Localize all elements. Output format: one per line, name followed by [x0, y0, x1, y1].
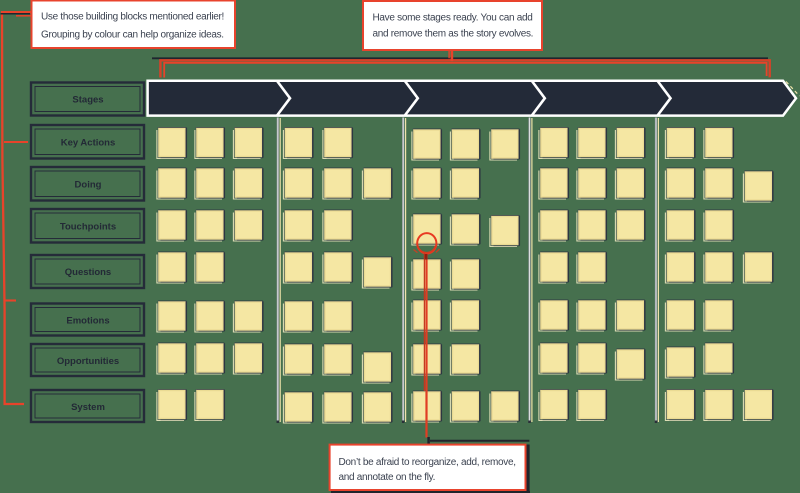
svg-text:and annotate on the fly.: and annotate on the fly. — [339, 472, 436, 483]
svg-text:Emotions: Emotions — [66, 316, 109, 327]
svg-text:Doing: Doing — [75, 180, 102, 191]
svg-text:Grouping by colour can help or: Grouping by colour can help organize ide… — [41, 29, 224, 40]
svg-text:and remove them as the story e: and remove them as the story evolves. — [373, 29, 534, 40]
svg-text:Have some stages ready. You ca: Have some stages ready. You can add — [373, 13, 533, 24]
svg-text:Questions: Questions — [65, 267, 111, 278]
svg-text:Don’t be afraid to reorganize,: Don’t be afraid to reorganize, add, remo… — [339, 457, 516, 468]
svg-text:Stages: Stages — [72, 95, 103, 106]
svg-text:Opportunities: Opportunities — [57, 356, 119, 367]
svg-text:Use those building blocks ment: Use those building blocks mentioned earl… — [41, 11, 224, 22]
svg-text:System: System — [71, 402, 105, 413]
svg-text:Key Actions: Key Actions — [61, 138, 116, 149]
svg-text:Touchpoints: Touchpoints — [60, 222, 116, 233]
